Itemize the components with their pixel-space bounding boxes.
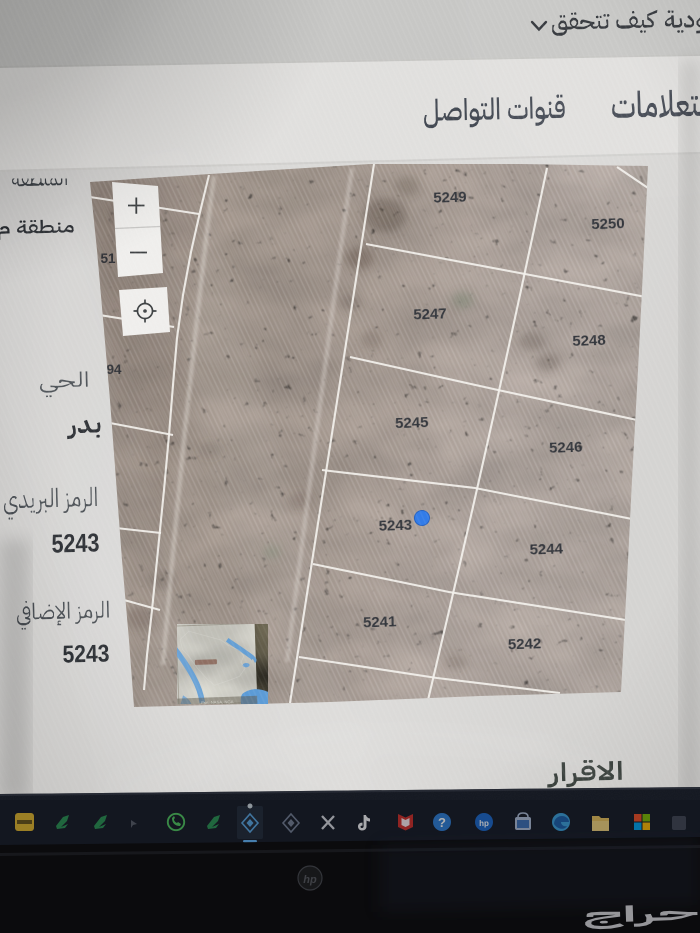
svg-text:hp: hp bbox=[303, 874, 317, 886]
